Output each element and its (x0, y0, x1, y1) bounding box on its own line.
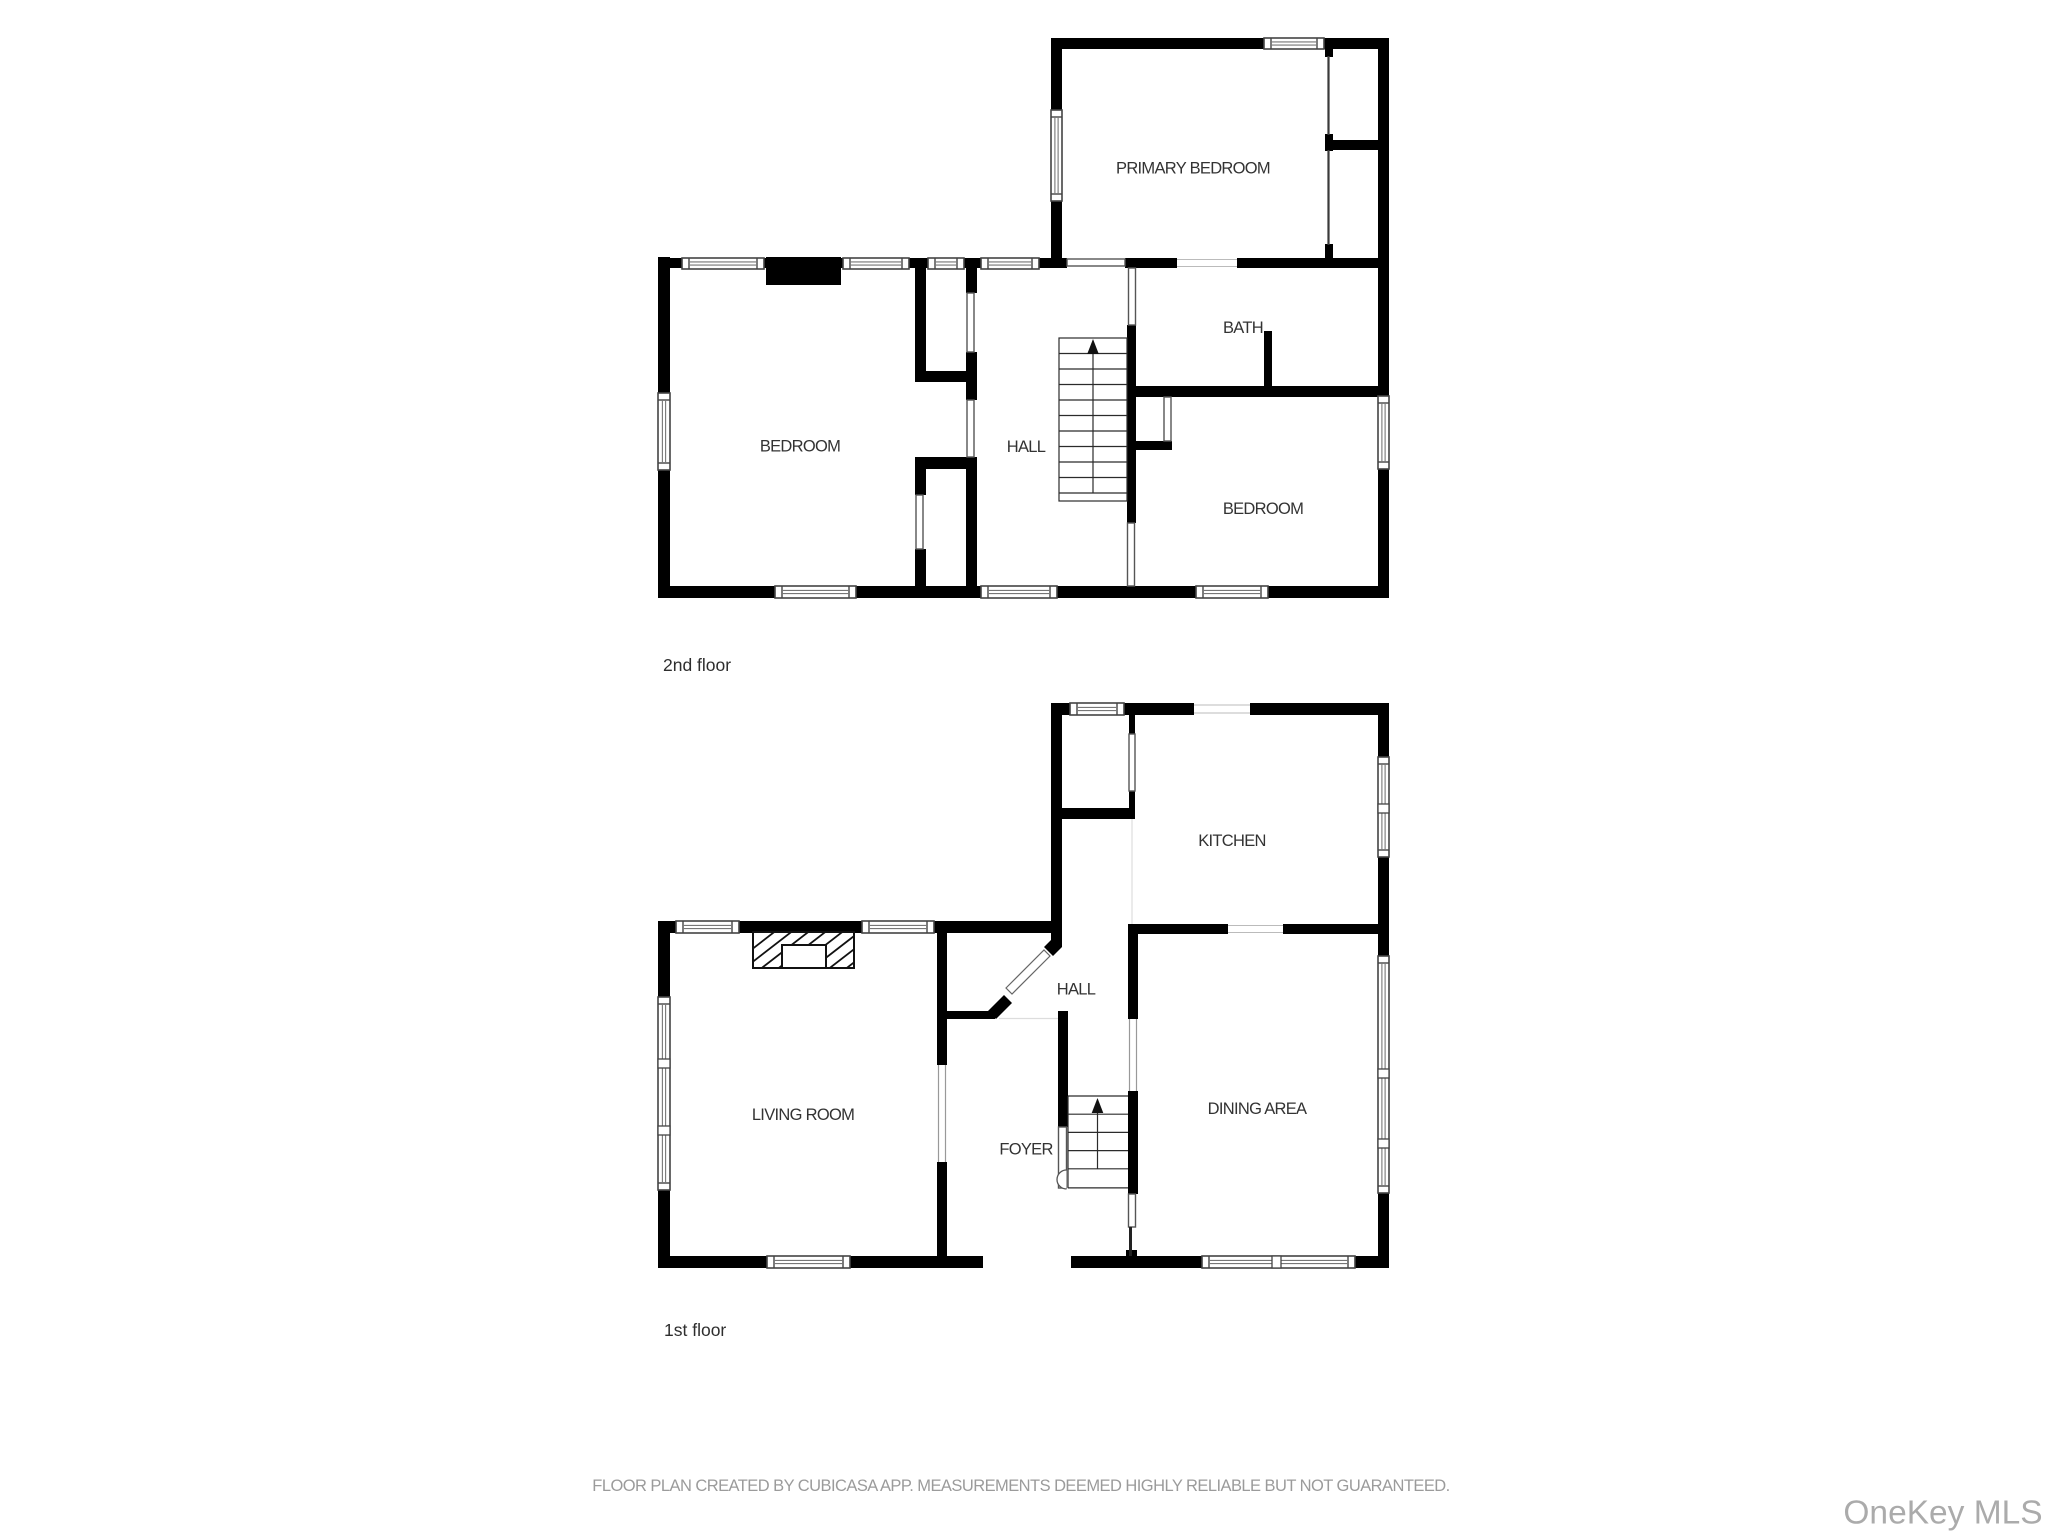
svg-text:PRIMARY BEDROOM: PRIMARY BEDROOM (1116, 160, 1270, 178)
svg-text:OneKey MLS: OneKey MLS (1843, 1495, 2042, 1532)
svg-text:FOYER: FOYER (999, 1141, 1053, 1159)
svg-text:LIVING ROOM: LIVING ROOM (752, 1106, 854, 1124)
svg-text:BATH: BATH (1223, 319, 1263, 337)
svg-text:1st floor: 1st floor (664, 1320, 726, 1340)
svg-text:HALL: HALL (1007, 438, 1046, 456)
svg-text:BEDROOM: BEDROOM (760, 438, 840, 456)
svg-text:BEDROOM: BEDROOM (1223, 500, 1303, 518)
svg-text:2nd floor: 2nd floor (663, 655, 731, 675)
svg-text:FLOOR PLAN CREATED BY CUBICASA: FLOOR PLAN CREATED BY CUBICASA APP. MEAS… (592, 1477, 1449, 1495)
svg-text:DINING AREA: DINING AREA (1208, 1100, 1307, 1118)
svg-text:HALL: HALL (1057, 981, 1096, 999)
svg-text:KITCHEN: KITCHEN (1198, 832, 1266, 850)
